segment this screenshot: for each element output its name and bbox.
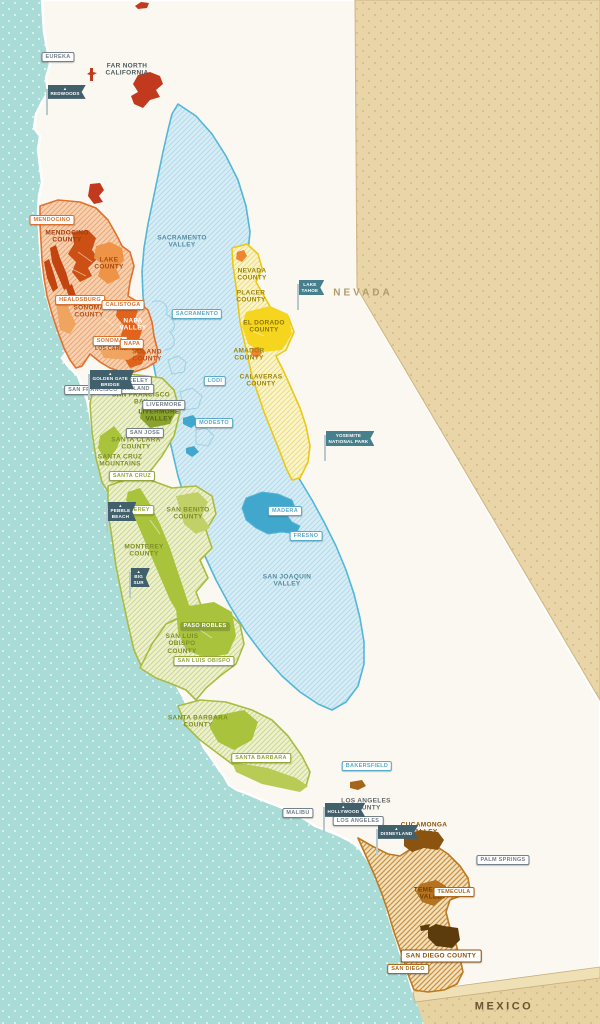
tag-fresno: FRESNO	[290, 531, 323, 541]
tag-modesto: MODESTO	[195, 418, 233, 428]
flag-pole	[324, 435, 326, 461]
label-livermore-valley: LIVERMORE VALLEY	[138, 409, 179, 424]
tag-bakersfield: BAKERSFIELD	[342, 761, 392, 771]
label-lake-county: LAKE COUNTY	[94, 257, 123, 272]
flag-lake-tahoe: LAKE TAHOE	[297, 280, 324, 295]
tag-napa: NAPA	[120, 339, 144, 349]
label-napa-valley: NAPA VALLEY	[120, 318, 147, 333]
label-el-dorado-county: EL DORADO COUNTY	[243, 320, 285, 335]
flag-label: GOLDEN GATE BRIDGE	[93, 376, 129, 387]
flag-pole	[129, 572, 131, 598]
flag-golden-gate-bridge: ▲GOLDEN GATE BRIDGE	[88, 370, 134, 389]
flag-label: YOSEMITE NATIONAL PARK	[329, 433, 369, 444]
flag-label: DISNEYLAND	[381, 831, 413, 837]
label-monterey-county: MONTEREY COUNTY	[124, 544, 163, 559]
label-solano-county: SOLANO COUNTY	[132, 349, 162, 364]
flag-label: HOLLYWOOD	[328, 809, 360, 815]
flag-yosemite-national-park: YOSEMITE NATIONAL PARK	[324, 431, 374, 446]
label-placer-county: PLACER COUNTY	[236, 290, 265, 305]
map-annotations: FAR NORTH CALIFORNIAMENDOCINO COUNTYLAKE…	[0, 0, 600, 1024]
flag-banner: ▲GOLDEN GATE BRIDGE	[90, 370, 135, 389]
flag-banner: ▲DISNEYLAND	[378, 825, 419, 839]
label-san-benito-county: SAN BENITO COUNTY	[167, 507, 210, 522]
label-sacramento-valley: SACRAMENTO VALLEY	[157, 235, 206, 250]
label-nevada: NEVADA	[333, 287, 392, 299]
flag-label: REDWOODS	[51, 91, 80, 97]
label-mendocino-county: MENDOCINO COUNTY	[45, 230, 88, 245]
tag-lodi: LODI	[204, 376, 226, 386]
flag-label: PEBBLE BEACH	[111, 508, 131, 519]
label-calaveras-county: CALAVERAS COUNTY	[240, 374, 283, 389]
flag-big-sur: ▲BIG SUR	[129, 568, 150, 587]
label-santa-cruz-mountains: SANTA CRUZ MOUNTAINS	[98, 454, 143, 469]
tag-paso-robles: PASO ROBLES	[181, 622, 230, 630]
flag-banner: ▲HOLLYWOOD	[325, 803, 366, 817]
california-wine-map: FAR NORTH CALIFORNIAMENDOCINO COUNTYLAKE…	[0, 0, 600, 1024]
label-san-joaquin-valley: SAN JOAQUIN VALLEY	[263, 574, 311, 589]
flag-banner: ▲BIG SUR	[131, 568, 150, 587]
label-san-luis-obispo-county: SAN LUIS OBISPO COUNTY	[166, 633, 199, 655]
tag-healdsburg: HEALDSBURG	[55, 295, 105, 305]
tag-san-luis-obispo: SAN LUIS OBISPO	[173, 656, 234, 666]
flag-redwoods: ▲REDWOODS	[46, 85, 86, 99]
tag-palm-springs: PALM SPRINGS	[476, 855, 529, 865]
label-nevada-county: NEVADA COUNTY	[237, 268, 266, 283]
flag-banner: YOSEMITE NATIONAL PARK	[326, 431, 375, 446]
tag-santa-cruz: SANTA CRUZ	[109, 471, 155, 481]
flag-pebble-beach: ▲PEBBLE BEACH	[106, 502, 136, 521]
label-santa-clara-county: SANTA CLARA COUNTY	[111, 437, 161, 452]
flag-banner: ▲PEBBLE BEACH	[108, 502, 137, 521]
flag-banner: ▲REDWOODS	[48, 85, 86, 99]
label-sonoma-county: SONOMA COUNTY	[73, 305, 104, 320]
label-amador-county: AMADOR COUNTY	[233, 348, 264, 363]
label-santa-barbara-county: SANTA BARBARA COUNTY	[168, 715, 228, 730]
tag-san-diego: SAN DIEGO	[387, 964, 429, 974]
tag-malibu: MALIBU	[282, 808, 313, 818]
tag-santa-barbara: SANTA BARBARA	[231, 753, 291, 763]
label-far-north-california: FAR NORTH CALIFORNIA	[105, 63, 148, 78]
flag-label: BIG SUR	[134, 574, 144, 585]
tag-san-diego-county: SAN DIEGO COUNTY	[401, 950, 482, 963]
flag-banner: LAKE TAHOE	[299, 280, 325, 295]
tag-sacramento: SACRAMENTO	[172, 309, 222, 319]
tag-madera: MADERA	[268, 506, 302, 516]
flag-pole	[297, 284, 299, 310]
flag-pole	[323, 807, 325, 833]
label-mexico: MEXICO	[475, 1001, 533, 1014]
flag-pole	[376, 829, 378, 855]
tag-livermore: LIVERMORE	[142, 400, 185, 410]
tag-temecula: TEMECULA	[434, 887, 475, 897]
flag-hollywood: ▲HOLLYWOOD	[323, 803, 365, 817]
tag-mendocino: MENDOCINO	[30, 215, 75, 225]
flag-pole	[106, 506, 108, 532]
tag-san-jose: SAN JOSE	[126, 428, 164, 438]
flag-pole	[88, 374, 90, 400]
tag-eureka: EUREKA	[41, 52, 74, 62]
flag-disneyland: ▲DISNEYLAND	[376, 825, 418, 839]
tag-calistoga: CALISTOGA	[102, 300, 145, 310]
flag-label: LAKE TAHOE	[302, 282, 319, 293]
flag-pole	[46, 89, 48, 115]
